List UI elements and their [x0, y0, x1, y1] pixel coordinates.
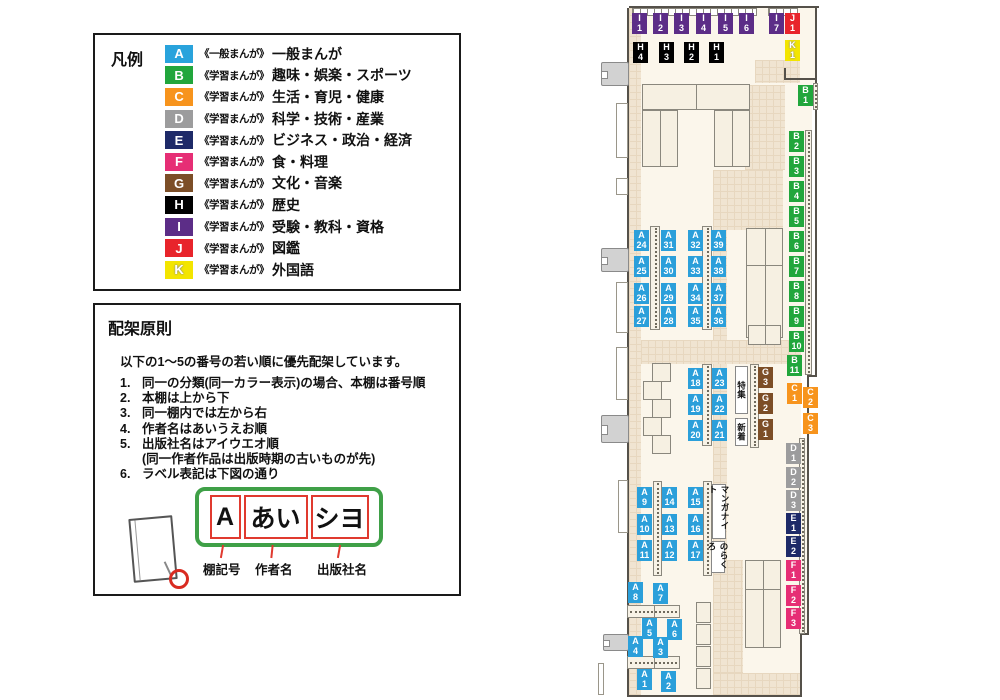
legend-row-K: K《学習まんが》外国語: [165, 259, 412, 281]
legend-items: A《一般まんが》一般まんがB《学習まんが》趣味・娯楽・スポーツC《学習まんが》生…: [165, 43, 412, 281]
shelf-label-H3: H3: [659, 42, 674, 63]
shelf-block: [652, 399, 671, 418]
rule-2: 2.本棚は上から下: [120, 391, 459, 406]
legend-row-A: A《一般まんが》一般まんが: [165, 43, 412, 65]
door-icon: [601, 415, 629, 443]
shelf-label-A26: A26: [634, 283, 649, 304]
legend-chip-B: B: [165, 66, 193, 84]
rule-text: 同一棚内では左から右: [142, 406, 267, 421]
shelf-label-B8: B8: [789, 281, 804, 302]
shelf-label-G2: G2: [758, 393, 773, 414]
wall-segment: [815, 6, 817, 85]
legend-row-C: C《学習まんが》生活・育児・健康: [165, 86, 412, 108]
shelf-block: [642, 110, 678, 167]
shelf-label-B4: B4: [789, 181, 804, 202]
shelf-label-C1: C1: [787, 383, 802, 404]
shelf-label-A18: A18: [688, 368, 703, 389]
rule-5: 5.出版社名はアイウエオ順: [120, 437, 459, 452]
shelf-label-B9: B9: [789, 306, 804, 327]
legend-chip-I: I: [165, 218, 193, 236]
label-tag: Aあいシヨ: [195, 487, 383, 547]
shelf-label-A4: A4: [628, 636, 643, 657]
wall-panel: [616, 103, 628, 158]
area-label-norakuro: のらくろ: [711, 541, 725, 573]
shelf-label-B1: B1: [798, 85, 813, 106]
rule-number: 4.: [120, 422, 142, 437]
shelf-label-A15: A15: [688, 487, 703, 508]
shelf-label-A28: A28: [661, 306, 676, 327]
shelf-label-A12: A12: [662, 540, 677, 561]
shelf-block: [643, 417, 662, 436]
legend-row-J: J《学習まんが》図鑑: [165, 237, 412, 259]
legend-prefix: 《学習まんが》: [199, 89, 269, 104]
legend-prefix: 《学習まんが》: [199, 176, 269, 191]
shelf-label-B3: B3: [789, 156, 804, 177]
legend-row-D: D《学習まんが》科学・技術・産業: [165, 108, 412, 130]
shelf-block: [746, 228, 783, 338]
shelf-label-E1: E1: [786, 513, 801, 534]
shelf-label-I2: I2: [653, 13, 668, 34]
shelf-block: [696, 624, 711, 645]
legend-category: 一般まんが: [272, 44, 342, 64]
shelf-strip: [702, 364, 712, 446]
shelf-label-A22: A22: [712, 394, 727, 415]
shelf-label-H4: H4: [633, 42, 648, 63]
legend-chip-E: E: [165, 131, 193, 149]
legend-chip-F: F: [165, 153, 193, 171]
shelf-label-D3: D3: [786, 490, 801, 511]
legend-prefix: 《学習まんが》: [199, 133, 269, 148]
shelf-label-A3: A3: [653, 637, 668, 658]
shelf-label-I4: I4: [696, 13, 711, 34]
shelf-strip: [650, 226, 660, 330]
shelf-label-A31: A31: [661, 230, 676, 251]
rule-number: 5.: [120, 437, 142, 452]
shelf-label-I6: I6: [739, 13, 754, 34]
tag-box-3: シヨ: [311, 495, 369, 539]
shelf-label-A30: A30: [661, 256, 676, 277]
wall-segment: [815, 83, 817, 375]
legend-prefix: 《学習まんが》: [199, 262, 269, 277]
shelf-label-A2: A2: [661, 671, 676, 692]
shelf-label-A11: A11: [637, 540, 652, 561]
legend-category: ビジネス・政治・経済: [272, 130, 412, 150]
legend-chip-G: G: [165, 174, 193, 192]
shelf-block: [652, 363, 671, 382]
principles-rules: 1.同一の分類(同一カラー表示)の場合、本棚は番号順2.本棚は上から下3.同一棚…: [120, 376, 459, 482]
shelf-label-B6: B6: [789, 231, 804, 252]
shelf-block: [696, 646, 711, 667]
shelf-label-H2: H2: [684, 42, 699, 63]
door-icon: [601, 62, 629, 86]
shelf-label-A16: A16: [688, 514, 703, 535]
legend-prefix: 《学習まんが》: [199, 241, 269, 256]
legend-row-F: F《学習まんが》食・料理: [165, 151, 412, 173]
shelf-label-A23: A23: [712, 368, 727, 389]
legend-row-H: H《学習まんが》歴史: [165, 194, 412, 216]
shelf-label-A25: A25: [634, 256, 649, 277]
shelf-label-B11: B11: [787, 355, 802, 376]
rule-4: 4.作者名はあいうえお順: [120, 422, 459, 437]
legend-category: 趣味・娯楽・スポーツ: [272, 65, 412, 85]
legend-chip-K: K: [165, 261, 193, 279]
shelf-label-E2: E2: [786, 536, 801, 557]
shelf-strip: [813, 83, 818, 110]
legend-prefix: 《学習まんが》: [199, 197, 269, 212]
rule-number: 2.: [120, 391, 142, 406]
rule-note: (同一作者作品は出版時期の古いものが先): [142, 452, 459, 467]
legend-category: 受験・教科・資格: [272, 217, 384, 237]
rule-3: 3.同一棚内では左から右: [120, 406, 459, 421]
label-caption-1: 棚記号: [203, 559, 241, 578]
legend-row-I: I《学習まんが》受験・教科・資格: [165, 216, 412, 238]
shelf-block: [745, 560, 781, 648]
legend-category: 外国語: [272, 260, 314, 280]
shelf-label-G3: G3: [758, 367, 773, 388]
shelf-label-A33: A33: [688, 256, 703, 277]
walkway-tiles: [745, 85, 785, 170]
shelf-label-F3: F3: [786, 608, 801, 629]
shelf-block: [696, 602, 711, 623]
shelf-label-A5: A5: [642, 618, 657, 639]
area-label-manga-night: マンガナイト: [712, 484, 726, 539]
shelf-label-D1: D1: [786, 443, 801, 464]
legend-title: 凡例: [111, 43, 143, 281]
shelf-label-B7: B7: [789, 256, 804, 277]
walkway-tiles: [713, 560, 743, 673]
shelf-label-A38: A38: [711, 256, 726, 277]
shelf-label-I1: I1: [632, 13, 647, 34]
shelf-label-G1: G1: [758, 419, 773, 440]
rule-text: 作者名はあいうえお順: [142, 422, 267, 437]
principles-box: 配架原則 以下の1〜5の番号の若い順に優先配架しています。 1.同一の分類(同一…: [93, 303, 461, 596]
shelf-label-A32: A32: [688, 230, 703, 251]
wall-segment: [784, 78, 817, 80]
shelf-label-A1: A1: [637, 669, 652, 690]
shelf-label-F1: F1: [786, 560, 801, 581]
shelf-block: [696, 668, 711, 689]
wall-panel: [618, 480, 628, 533]
legend-category: 歴史: [272, 195, 300, 215]
shelf-label-H1: H1: [709, 42, 724, 63]
shelf-label-B5: B5: [789, 206, 804, 227]
wall-panel: [616, 347, 628, 400]
principles-intro: 以下の1〜5の番号の若い順に優先配架しています。: [120, 351, 459, 370]
shelf-label-A35: A35: [688, 306, 703, 327]
shelf-label-A29: A29: [661, 283, 676, 304]
callout-line: [270, 545, 273, 558]
legend-prefix: 《学習まんが》: [199, 154, 269, 169]
shelf-strip: [653, 481, 662, 576]
shelf-label-A37: A37: [711, 283, 726, 304]
shelf-block: [748, 325, 781, 345]
legend-row-E: E《学習まんが》ビジネス・政治・経済: [165, 129, 412, 151]
shelf-label-C2: C2: [803, 387, 818, 408]
rule-1: 1.同一の分類(同一カラー表示)の場合、本棚は番号順: [120, 376, 459, 391]
legend-category: 食・料理: [272, 152, 328, 172]
wall-panel: [598, 663, 604, 695]
rule-number: 3.: [120, 406, 142, 421]
tag-box-1: A: [210, 495, 241, 539]
legend-row-G: G《学習まんが》文化・音楽: [165, 173, 412, 195]
rule-number: 1.: [120, 376, 142, 391]
walkway-tiles: [713, 170, 783, 230]
shelf-label-I5: I5: [718, 13, 733, 34]
shelf-label-B2: B2: [789, 131, 804, 152]
shelf-label-A7: A7: [653, 583, 668, 604]
legend-category: 図鑑: [272, 238, 300, 258]
label-caption-2: 作者名: [255, 559, 293, 578]
shelf-block: [714, 110, 750, 167]
shelf-label-A34: A34: [688, 283, 703, 304]
rule-text: 同一の分類(同一カラー表示)の場合、本棚は番号順: [142, 376, 425, 391]
shelf-block: [652, 435, 671, 454]
wall-panel: [616, 282, 628, 333]
shelf-label-C3: C3: [803, 413, 818, 434]
shelf-label-D2: D2: [786, 467, 801, 488]
rule-text: 出版社名はアイウエオ順: [142, 437, 279, 452]
shelf-label-A24: A24: [634, 230, 649, 251]
shelf-strip: [627, 605, 680, 618]
shelf-label-K1: K1: [785, 40, 800, 61]
shelf-label-A13: A13: [662, 514, 677, 535]
shelf-label-A21: A21: [712, 420, 727, 441]
wall-panel: [616, 178, 628, 195]
floor-map: I1I2I3I4I5I6I7J1K1H4H3H2H1B1B2B3B4B5B6B7…: [596, 0, 830, 700]
shelf-block: [643, 381, 662, 400]
legend-box: 凡例 A《一般まんが》一般まんがB《学習まんが》趣味・娯楽・スポーツC《学習まん…: [93, 33, 461, 291]
legend-chip-D: D: [165, 110, 193, 128]
label-caption-3: 出版社名: [317, 559, 367, 578]
shelf-label-A20: A20: [688, 420, 703, 441]
door-icon: [603, 634, 629, 651]
shelf-label-A8: A8: [628, 582, 643, 603]
wall-segment: [629, 695, 802, 697]
shelf-label-I7: I7: [769, 13, 784, 34]
legend-chip-J: J: [165, 239, 193, 257]
shelf-label-F2: F2: [786, 585, 801, 606]
legend-chip-A: A: [165, 45, 193, 63]
legend-prefix: 《一般まんが》: [199, 46, 269, 61]
shelf-label-A27: A27: [634, 306, 649, 327]
principles-title: 配架原則: [108, 315, 459, 339]
legend-chip-C: C: [165, 88, 193, 106]
shelf-label-A6: A6: [667, 619, 682, 640]
legend-prefix: 《学習まんが》: [199, 68, 269, 83]
legend-category: 科学・技術・産業: [272, 109, 384, 129]
rule-text: 本棚は上から下: [142, 391, 230, 406]
legend-category: 文化・音楽: [272, 173, 342, 193]
shelf-label-A39: A39: [711, 230, 726, 251]
legend-row-B: B《学習まんが》趣味・娯楽・スポーツ: [165, 65, 412, 87]
shelf-label-A14: A14: [662, 487, 677, 508]
shelf-block: [642, 84, 750, 110]
shelf-label-A10: A10: [637, 514, 652, 535]
tag-box-2: あい: [244, 495, 308, 539]
shelf-label-J1: J1: [785, 13, 800, 34]
walkway-tiles: [713, 673, 800, 695]
legend-category: 生活・育児・健康: [272, 87, 384, 107]
shelf-strip: [805, 130, 812, 375]
door-icon: [601, 248, 629, 272]
label-captions: 棚記号作者名出版社名: [95, 559, 463, 577]
legend-prefix: 《学習まんが》: [199, 219, 269, 234]
shelf-label-A17: A17: [688, 540, 703, 561]
shelf-label-A19: A19: [688, 394, 703, 415]
legend-chip-H: H: [165, 196, 193, 214]
wall-segment: [800, 635, 802, 697]
area-label-tokushu: 特集: [735, 366, 748, 414]
shelf-label-A9: A9: [637, 487, 652, 508]
shelf-label-I3: I3: [674, 13, 689, 34]
shelf-label-A36: A36: [711, 306, 726, 327]
legend-prefix: 《学習まんが》: [199, 111, 269, 126]
label-example-diagram: Aあいシヨ 棚記号作者名出版社名: [95, 481, 463, 596]
area-label-shinchaku: 新着: [735, 418, 748, 446]
shelf-label-B10: B10: [789, 331, 804, 352]
